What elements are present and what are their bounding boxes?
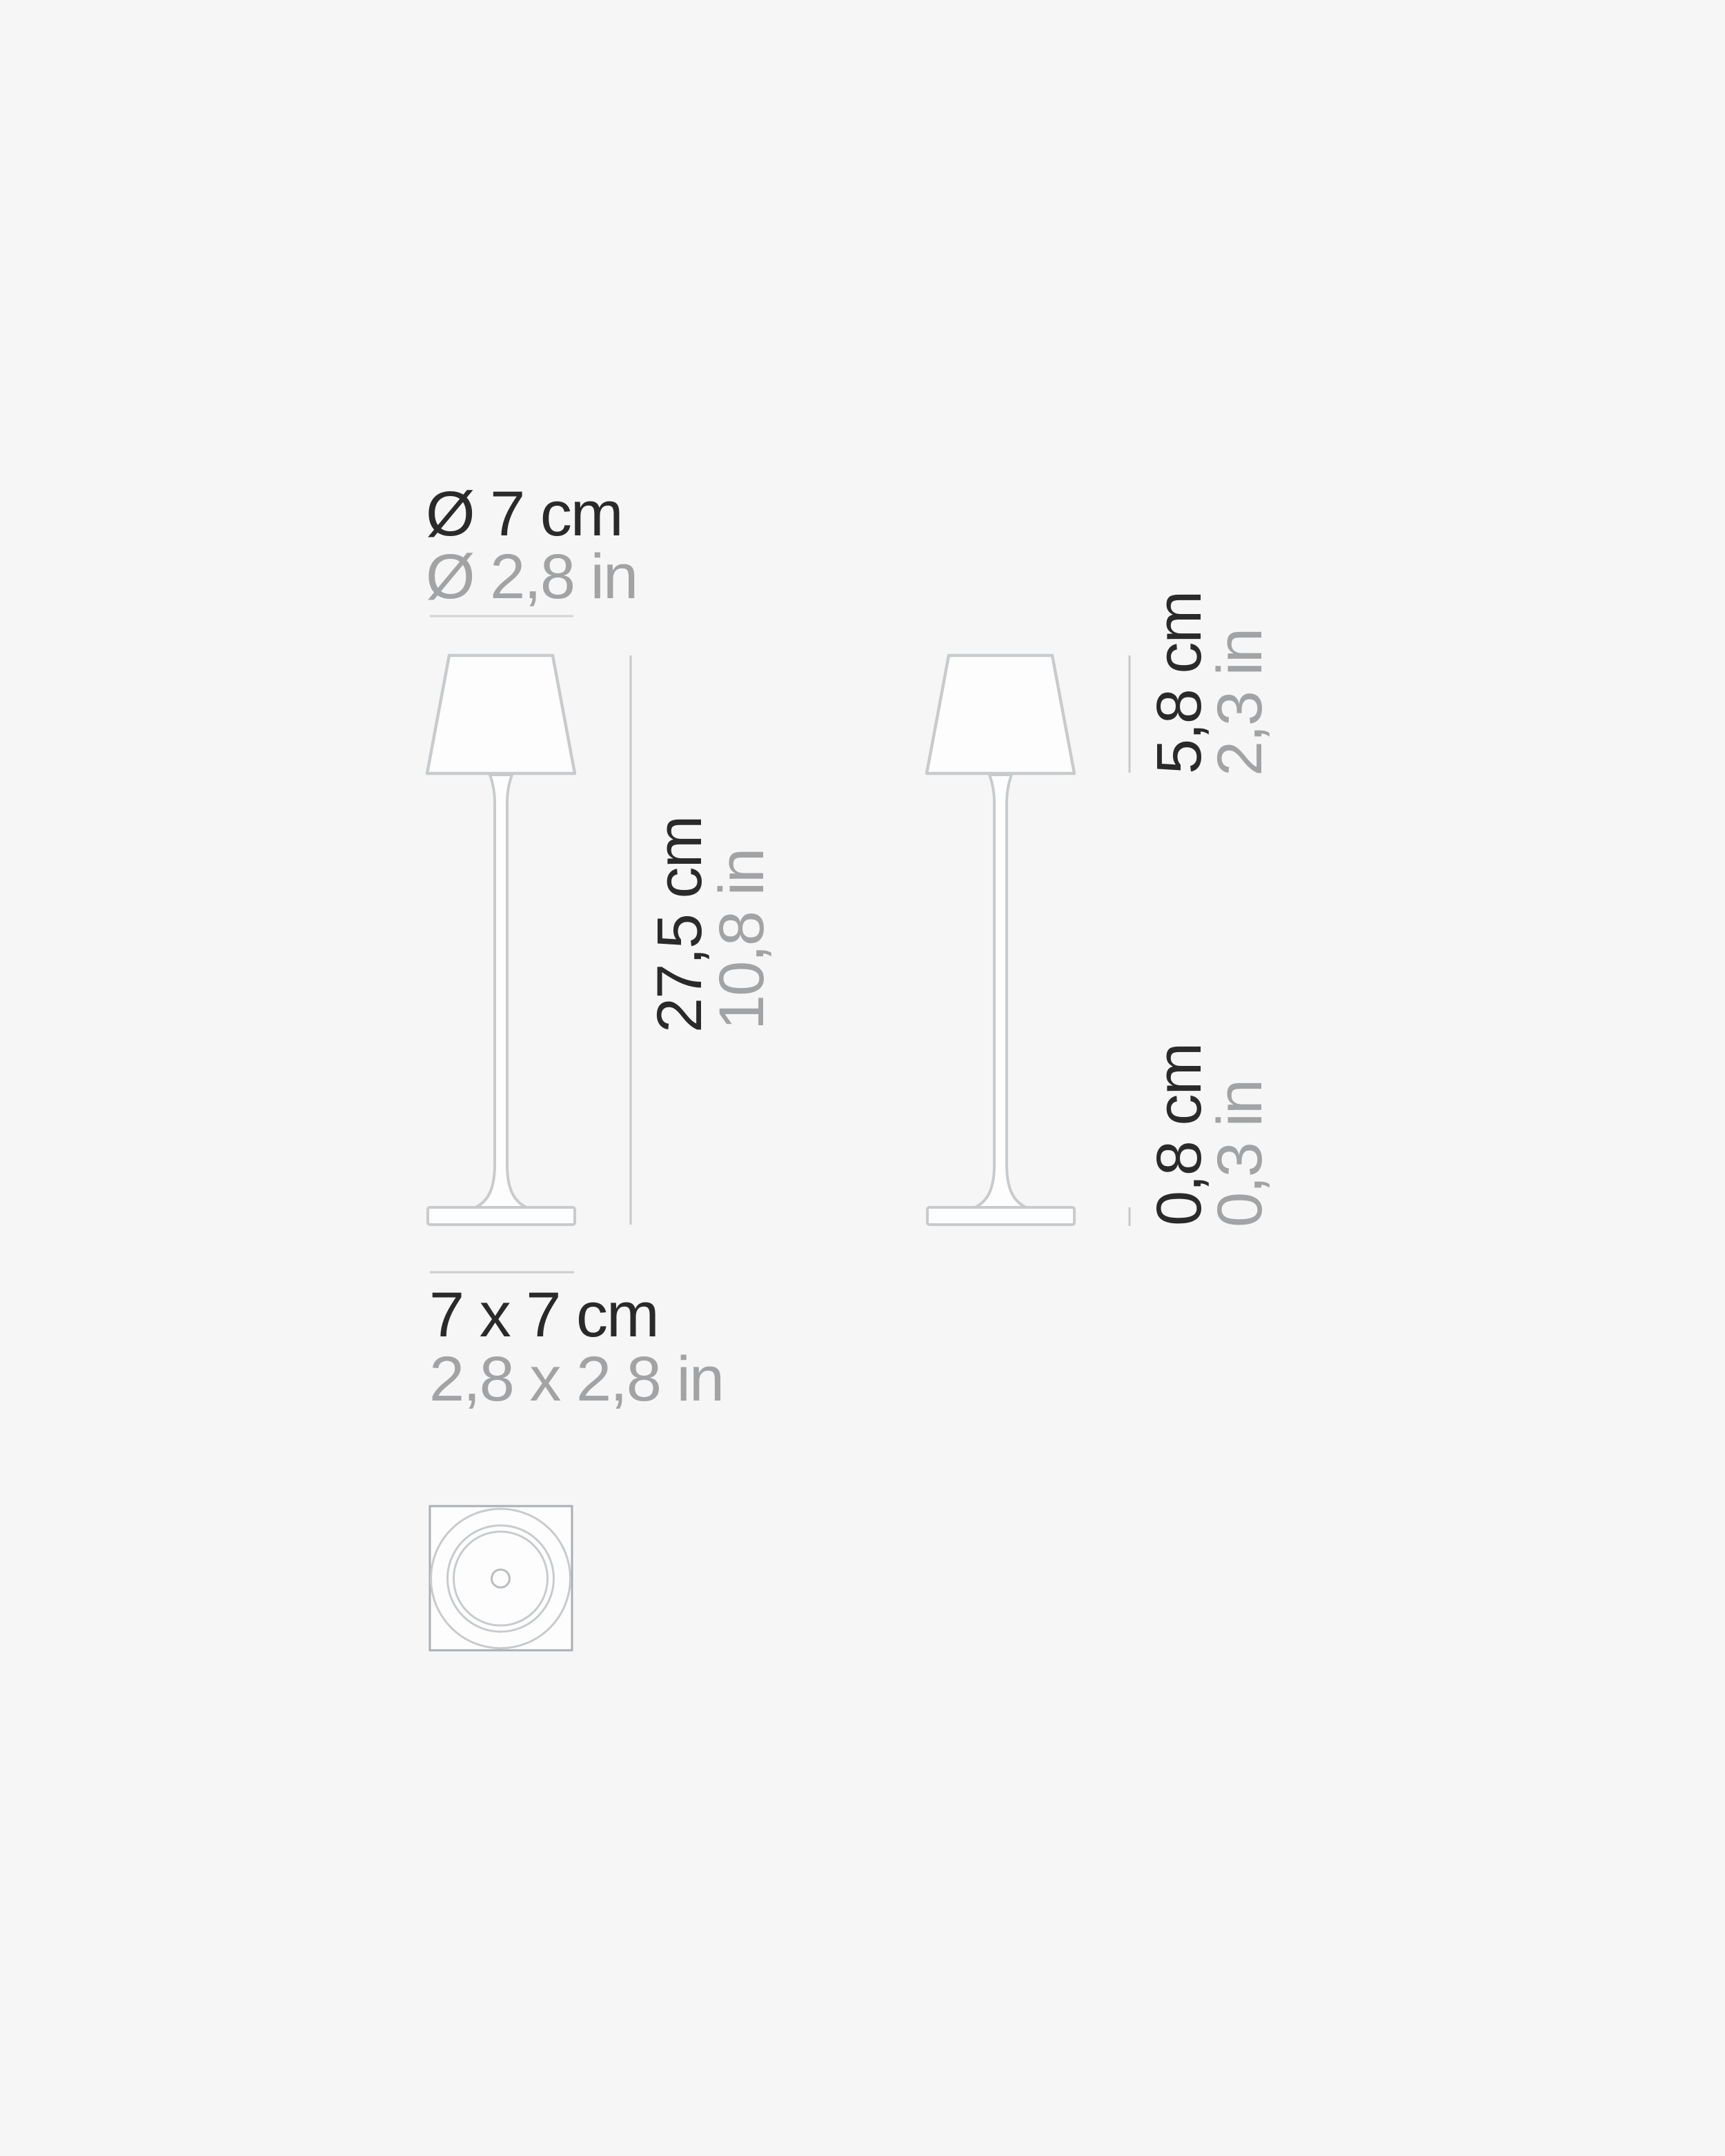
diameter-label-cm: Ø 7 cm — [426, 482, 622, 546]
diameter-label-in: Ø 2,8 in — [426, 545, 637, 609]
lamp-side-elevation — [927, 655, 1074, 1225]
top-view-center-knob — [492, 1570, 510, 1588]
shade-height-label-cm: 5,8 cm — [1147, 592, 1211, 774]
dimension-diagram-canvas: Ø 7 cm Ø 2,8 in 27,5 cm 10,8 in 5,8 cm 2… — [0, 0, 1725, 2156]
footprint-label-in: 2,8 x 2,8 in — [429, 1347, 723, 1411]
footprint-label-cm: 7 x 7 cm — [429, 1283, 658, 1347]
lamp-front-elevation — [427, 655, 575, 1225]
base-height-label-in: 0,3 in — [1208, 1080, 1272, 1227]
shade-height-label-in: 2,3 in — [1208, 629, 1272, 776]
height-label-cm: 27,5 cm — [648, 817, 711, 1033]
lamp-top-view — [430, 1506, 572, 1650]
height-label-in: 10,8 in — [710, 849, 773, 1030]
base-height-label-cm: 0,8 cm — [1147, 1044, 1211, 1226]
lamp-drawing-svg — [0, 0, 1725, 2156]
